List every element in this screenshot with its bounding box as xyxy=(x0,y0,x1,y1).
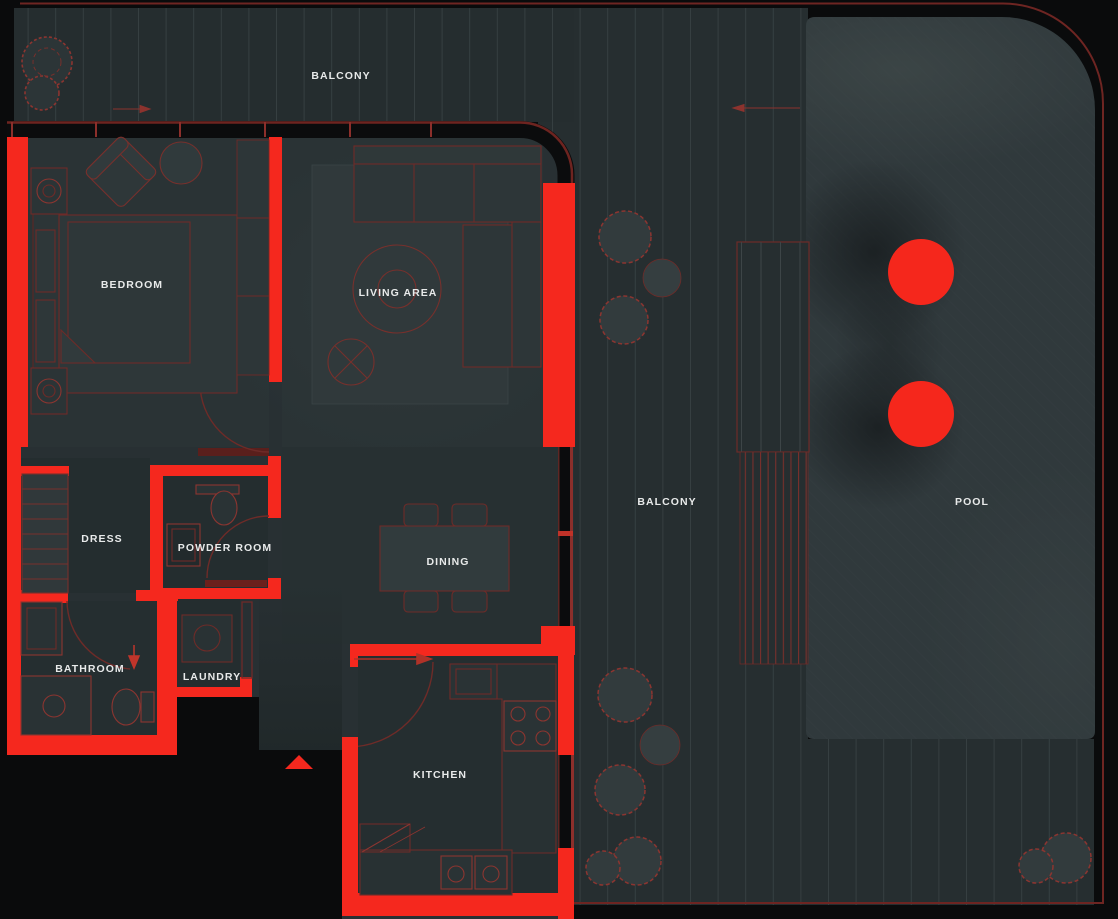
svg-text:DINING: DINING xyxy=(426,556,469,568)
svg-text:KITCHEN: KITCHEN xyxy=(413,769,467,781)
svg-text:LAUNDRY: LAUNDRY xyxy=(183,671,241,683)
svg-text:BEDROOM: BEDROOM xyxy=(101,279,163,291)
svg-text:POWDER ROOM: POWDER ROOM xyxy=(178,542,272,554)
svg-text:DRESS: DRESS xyxy=(81,533,122,545)
svg-text:LIVING AREA: LIVING AREA xyxy=(359,287,438,299)
svg-text:BALCONY: BALCONY xyxy=(637,496,696,508)
svg-text:BALCONY: BALCONY xyxy=(311,70,370,82)
svg-text:POOL: POOL xyxy=(955,496,989,508)
svg-text:BATHROOM: BATHROOM xyxy=(55,663,124,675)
